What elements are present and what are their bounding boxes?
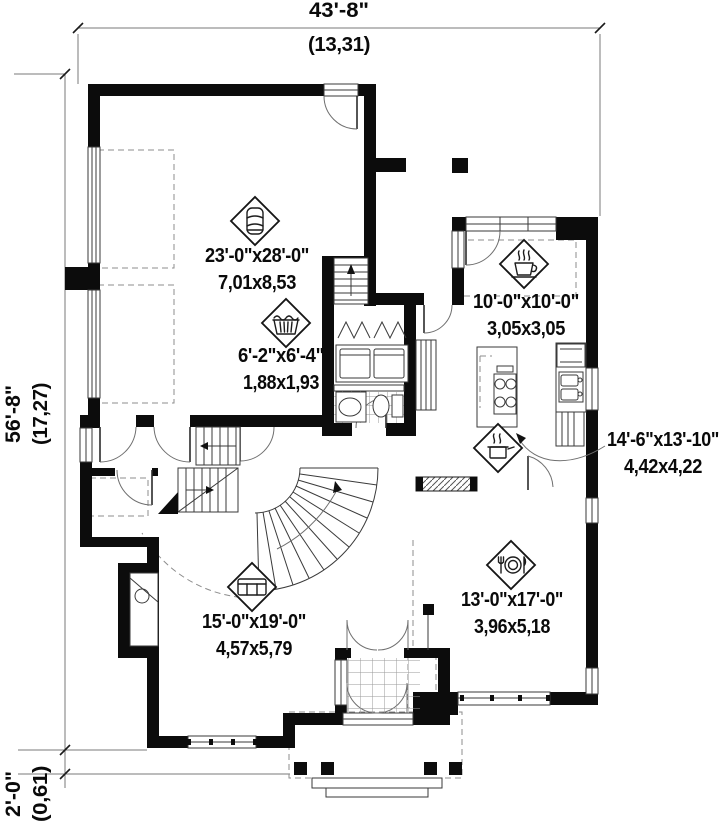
dinette-bay-window (500, 217, 556, 231)
porch-offset-dimension-metric: (0,61) (30, 766, 52, 822)
stair-direction-arrow (333, 481, 342, 493)
dining-post (423, 604, 434, 615)
rear-porch-stub-wall (376, 158, 406, 172)
porch-column (424, 762, 437, 775)
porch-step-2 (326, 788, 428, 797)
stair-winder (158, 492, 178, 514)
cooking-pot-icon (474, 424, 522, 472)
kitchen-size-metric: 4,42x4,22 (624, 456, 702, 478)
laundry-size-metric: 1,88x1,93 (243, 372, 319, 394)
vestibule-tile-floor (347, 658, 420, 713)
main-stairs-straight (158, 427, 240, 514)
floor-plan-canvas: 43'-8" (13,31) 56'-8" (17,27) 2'-0" (0,6… (0, 0, 720, 831)
entry-threshold (343, 713, 413, 725)
bath-partition (334, 385, 404, 391)
height-dimension-metric: (17,27) (30, 383, 52, 445)
vestibule-sidelight (335, 660, 347, 705)
bath-sink (339, 398, 361, 416)
garage-overhead-door-1 (88, 147, 100, 263)
dinette-size-metric: 3,05x3,05 (487, 318, 565, 340)
porch-column (294, 762, 307, 775)
plate-cutlery-icon (487, 541, 535, 589)
washer (340, 349, 370, 378)
width-dimension-imperial: 43'-8" (309, 0, 369, 22)
kitchen-peninsula (416, 477, 477, 491)
dining-size-metric: 3,96x5,18 (474, 616, 550, 638)
garage-door-track-1 (98, 150, 174, 268)
garage-rear-door-swing (324, 96, 357, 129)
toilet-tank (392, 395, 403, 417)
basement-stairs (334, 258, 368, 304)
dryer (374, 349, 404, 378)
garage-door-track-2 (98, 285, 174, 403)
porch-column (321, 762, 334, 775)
dining-size-imperial: 13'-0"x17'-0" (461, 589, 563, 611)
porch-step-1 (312, 778, 442, 788)
floor-plan: 43'-8" (13,31) 56'-8" (17,27) 2'-0" (0,6… (0, 0, 720, 831)
dinette-rear-door-swing (466, 231, 500, 265)
laundry-basket-icon (262, 299, 310, 347)
dinette-sidelight (452, 231, 464, 268)
garage-to-hall-door (100, 427, 136, 462)
coat-hooks (374, 322, 406, 338)
height-dimension-imperial: 56'-8" (2, 385, 25, 443)
dining-window-right-1 (586, 498, 598, 523)
stair-landing-door (154, 427, 190, 462)
kitchen-size-imperial: 14'-6"x13'-10" (607, 429, 719, 451)
hall-to-foyer-door (240, 427, 274, 461)
rear-to-kitchen-door (424, 305, 452, 333)
fixtures (118, 322, 586, 713)
laundry-size-imperial: 6'-2"x6'-4" (238, 345, 324, 367)
garage-size-imperial: 23'-0"x28'-0" (205, 245, 309, 267)
refrigerator (556, 412, 584, 446)
kitchen-sink-window (586, 368, 598, 410)
garage-overhead-door-2 (88, 290, 100, 398)
car-icon (231, 197, 279, 245)
cooktop-controls (497, 366, 513, 372)
dining-window-bottom (458, 692, 550, 705)
garage-rear-door (324, 84, 358, 96)
fireplace (118, 563, 158, 658)
garage-pilaster (65, 267, 93, 290)
curved-staircase (255, 468, 378, 591)
sofa-icon (228, 563, 276, 611)
kitchen-closet-door (528, 456, 553, 490)
living-size-metric: 4,57x5,79 (216, 638, 292, 660)
dinette-size-imperial: 10'-0"x10'-0" (473, 291, 579, 313)
rear-porch-post (452, 158, 468, 173)
hall-closet-door (117, 470, 152, 505)
toilet-bowl (373, 395, 389, 417)
living-size-imperial: 15'-0"x19'-0" (202, 611, 306, 633)
dinette-rear-door-jamb (466, 217, 500, 231)
living-window (187, 736, 257, 748)
garage-size-metric: 7,01x8,53 (218, 272, 296, 294)
width-dimension-metric: (13,31) (308, 34, 370, 56)
front-porch (294, 762, 462, 797)
coffee-cup-icon (500, 240, 548, 288)
porch-column (449, 762, 462, 775)
dining-window-right-2 (586, 668, 598, 694)
coat-hooks (338, 322, 370, 338)
porch-offset-dimension-imperial: 2'-0" (2, 771, 25, 817)
hall-window (80, 428, 92, 462)
hall-closet-dashes (90, 478, 148, 516)
foyer-french-doors (347, 620, 408, 650)
range (557, 344, 585, 367)
